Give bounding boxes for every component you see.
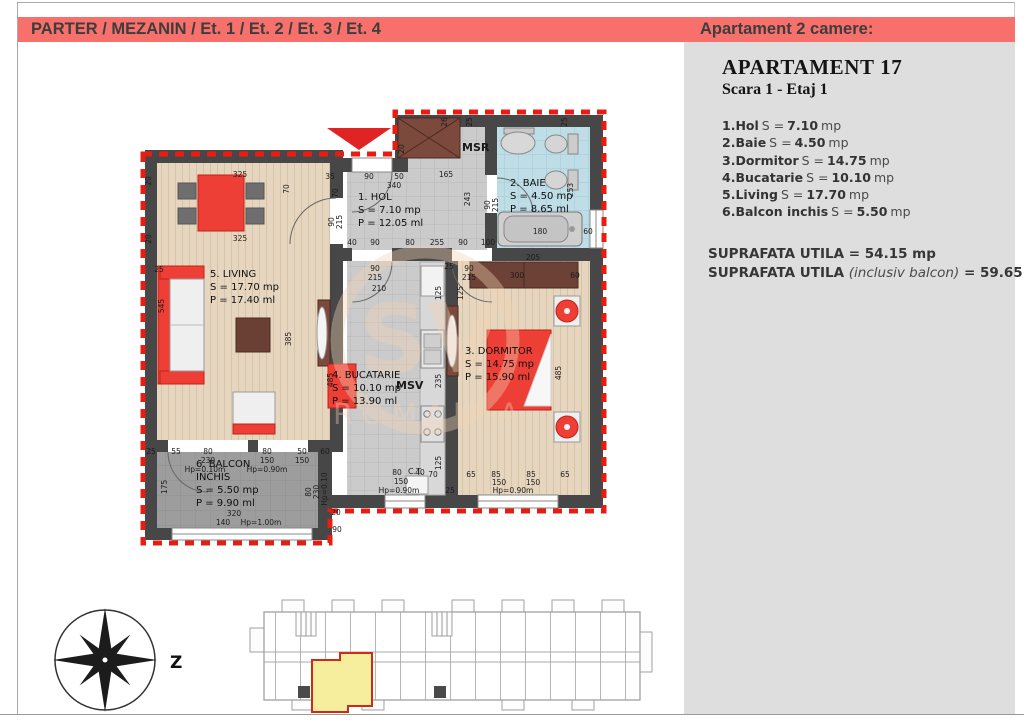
nightstand-top <box>554 296 580 326</box>
dim-label: 80 <box>262 447 272 456</box>
dim-label: Hp=0.90m <box>379 486 420 495</box>
dim-label: 20 <box>397 144 406 154</box>
svg-text:S = 4.50 mp: S = 4.50 mp <box>510 191 573 202</box>
bathroom-sink <box>501 128 535 154</box>
dim-label: 80 <box>405 238 415 247</box>
dim-label: 60 <box>583 227 593 236</box>
dim-label: 165 <box>439 170 454 179</box>
svg-text:5. LIVING: 5. LIVING <box>210 269 256 280</box>
dim-label: 150 <box>394 477 409 486</box>
dim-label: 125 <box>456 286 465 301</box>
dim-label: 25 <box>465 117 474 127</box>
entrance-door <box>352 158 392 172</box>
svg-text:3. DORMITOR: 3. DORMITOR <box>465 346 533 357</box>
svg-text:S = 5.50 mp: S = 5.50 mp <box>196 485 259 496</box>
dim-label: 385 <box>284 332 293 347</box>
svg-text:S = 7.10 mp: S = 7.10 mp <box>358 205 421 216</box>
building-outline <box>250 600 652 712</box>
dim-label: 325 <box>233 234 248 243</box>
floor-plan-svg: SV ROMANIA 1. HOL S = 7.10 mp P = 12.05 … <box>0 0 1024 728</box>
overview: Z <box>53 600 652 712</box>
dim-label: 253 <box>566 183 575 198</box>
dim-label: 55 <box>171 447 181 456</box>
dim-label: 70 <box>282 184 291 194</box>
highlighted-apartment <box>312 653 372 712</box>
armchair <box>233 392 275 434</box>
svg-text:P = 9.90 ml: P = 9.90 ml <box>196 498 255 509</box>
dim-label: Hp=0.10 <box>320 472 329 506</box>
dim-label: 230 <box>201 456 216 465</box>
dormitor-label: 3. DORMITOR S = 14.75 mp P = 15.90 ml <box>465 346 534 383</box>
dim-label: 235 <box>434 374 443 389</box>
sofa <box>158 266 204 384</box>
dim-label: 340 <box>387 181 402 190</box>
dim-label: 80 <box>203 447 213 456</box>
dim-label: 90 <box>370 264 380 273</box>
dim-label: Hp=0.10m <box>185 465 226 474</box>
dim-label: 35 <box>325 172 335 181</box>
dim-label: 140 <box>216 518 231 527</box>
dim-label: 320 <box>227 509 242 518</box>
dim-label: 90 <box>464 264 474 273</box>
dim-label: 70 <box>428 470 438 479</box>
dim-label: 215 <box>335 215 344 230</box>
dim-label: 25 <box>445 486 455 495</box>
dim-label: 60 <box>320 447 330 456</box>
svg-text:S = 10.10 mp: S = 10.10 mp <box>332 383 401 394</box>
svg-text:S = 17.70 mp: S = 17.70 mp <box>210 282 279 293</box>
dim-label: 90 <box>458 238 468 247</box>
msr-label: MSR <box>462 141 490 154</box>
dim-label: 25 <box>444 262 454 271</box>
dim-label: 20 <box>144 234 153 244</box>
compass-rose: Z <box>53 608 182 712</box>
dim-label: 325 <box>233 170 248 179</box>
dim-label: 215 <box>491 198 500 213</box>
msr-shaft <box>398 118 460 158</box>
dim-label: 215 <box>462 273 477 282</box>
dim-label: 40 <box>347 238 357 247</box>
svg-text:P = 13.90 ml: P = 13.90 ml <box>332 396 397 407</box>
dim-label: 90 <box>370 238 380 247</box>
dim-label: Hp=1.00m <box>241 518 282 527</box>
dim-label: 90 <box>364 172 374 181</box>
dim-label: 150 <box>295 456 310 465</box>
toilet <box>545 134 578 154</box>
svg-text:P = 17.40 ml: P = 17.40 ml <box>210 295 275 306</box>
dim-label: 26 <box>440 117 449 127</box>
dim-label: 90 <box>332 525 342 534</box>
tv-unit-living <box>317 300 330 366</box>
dim-label: 25 <box>146 447 156 456</box>
dim-label: 100 <box>481 238 496 247</box>
svg-text:1. HOL: 1. HOL <box>358 192 392 203</box>
dim-label: 180 <box>533 227 548 236</box>
dim-label: 485 <box>326 373 335 388</box>
dim-label: 60 <box>570 271 580 280</box>
dim-label: 485 <box>554 366 563 381</box>
dim-label: 215 <box>368 273 383 282</box>
dim-label: 205 <box>526 253 541 262</box>
dim-label: 150 <box>260 456 275 465</box>
dim-label: Hp=0.90m <box>247 465 288 474</box>
dim-label: 20 <box>331 508 341 517</box>
dim-label: 80 <box>392 468 402 477</box>
svg-text:4. BUCATARIE: 4. BUCATARIE <box>332 370 400 381</box>
dim-label: 70 <box>331 188 340 198</box>
coffee-table <box>236 318 270 352</box>
dim-label: 25 <box>154 265 164 274</box>
entrance-arrow <box>327 128 391 150</box>
dim-label: 125 <box>434 456 443 471</box>
dim-label: 20 <box>144 176 153 186</box>
dim-label: 25 <box>560 117 569 127</box>
dim-label: 210 <box>372 284 387 293</box>
dim-label: 300 <box>510 271 525 280</box>
dim-label: 545 <box>157 299 166 314</box>
dim-label: 65 <box>560 470 570 479</box>
compass-north-label: Z <box>170 653 182 673</box>
dim-label: 50 <box>297 447 307 456</box>
bucatarie-label: 4. BUCATARIE S = 10.10 mp P = 13.90 ml <box>332 370 401 407</box>
dim-label: 125 <box>434 286 443 301</box>
dim-label: 65 <box>466 470 476 479</box>
dim-label: 40 <box>415 468 425 477</box>
svg-text:P = 12.05 ml: P = 12.05 ml <box>358 218 423 229</box>
nightstand-bottom <box>554 412 580 442</box>
dim-label: 243 <box>463 192 472 207</box>
dim-label: 255 <box>430 238 445 247</box>
svg-text:P = 8.65 ml: P = 8.65 ml <box>510 204 569 215</box>
msv-label: MSV <box>396 379 424 392</box>
dim-label: 175 <box>160 480 169 495</box>
dim-label: Hp=0.90m <box>493 486 534 495</box>
dim-label: 50 <box>394 172 404 181</box>
svg-text:S = 14.75 mp: S = 14.75 mp <box>465 359 534 370</box>
svg-text:P = 15.90 ml: P = 15.90 ml <box>465 372 530 383</box>
svg-text:2. BAIE: 2. BAIE <box>510 178 546 189</box>
